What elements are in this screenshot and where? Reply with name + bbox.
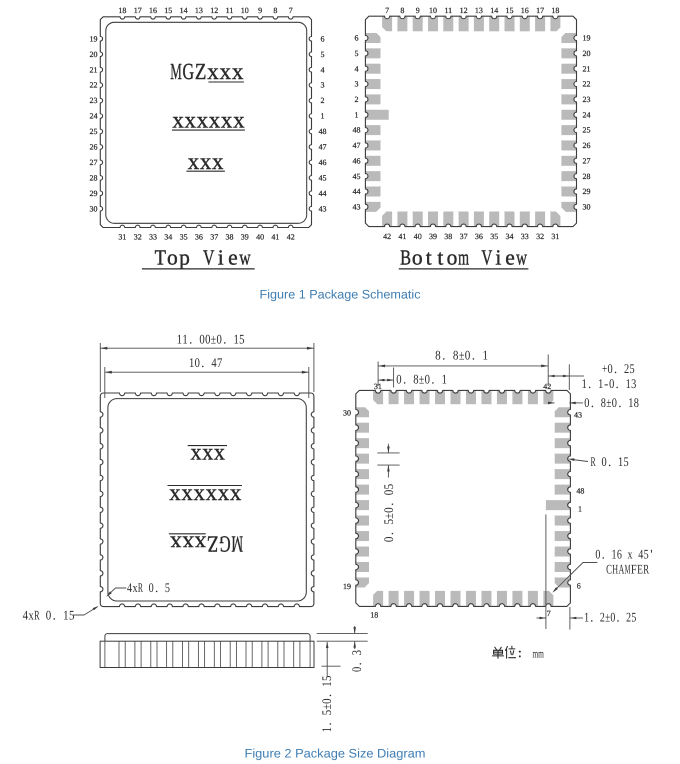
svg-text:47: 47: [319, 143, 327, 152]
svg-text:1: 1: [598, 376, 603, 391]
svg-text:22: 22: [583, 80, 591, 89]
svg-text:0: 0: [319, 698, 334, 704]
svg-text:.: .: [381, 503, 396, 506]
svg-text:.: .: [403, 372, 406, 387]
svg-text:C: C: [606, 562, 612, 577]
svg-text:5: 5: [239, 331, 245, 346]
svg-text:30: 30: [90, 204, 98, 213]
svg-text:7: 7: [547, 609, 551, 618]
svg-text:42: 42: [287, 233, 295, 242]
svg-text:.: .: [608, 454, 611, 469]
svg-text:x: x: [232, 59, 244, 84]
svg-text:27: 27: [583, 156, 591, 165]
svg-text:42: 42: [543, 382, 551, 391]
svg-text:1: 1: [584, 610, 589, 625]
svg-text:x: x: [197, 108, 209, 133]
svg-text:6: 6: [355, 34, 359, 43]
svg-text:17: 17: [536, 6, 544, 15]
svg-text:w: w: [239, 246, 251, 270]
svg-text:R: R: [643, 562, 649, 577]
svg-text:V: V: [481, 246, 492, 270]
svg-text:28: 28: [90, 173, 98, 182]
svg-text:21: 21: [583, 64, 591, 73]
svg-text:43: 43: [353, 202, 361, 211]
svg-text:t: t: [437, 246, 443, 270]
svg-text:M: M: [625, 562, 631, 577]
svg-text:x: x: [221, 108, 233, 133]
svg-text:.: .: [201, 355, 204, 370]
svg-text:40: 40: [256, 233, 264, 242]
svg-text:14: 14: [180, 6, 188, 15]
svg-text:39: 39: [429, 232, 437, 241]
svg-text:1: 1: [233, 331, 238, 346]
svg-text:40: 40: [414, 232, 422, 241]
svg-text:18: 18: [551, 6, 559, 15]
svg-text:x: x: [200, 149, 212, 174]
svg-text:V: V: [203, 246, 215, 270]
svg-text:0: 0: [216, 331, 222, 346]
svg-text:28: 28: [583, 172, 591, 181]
svg-text:39: 39: [241, 233, 249, 242]
svg-text:0: 0: [602, 454, 607, 469]
svg-text:.: .: [614, 361, 617, 376]
svg-text:1: 1: [442, 372, 447, 387]
svg-text:.: .: [381, 532, 396, 535]
svg-text:x: x: [628, 546, 633, 561]
svg-text:-: -: [604, 376, 608, 391]
svg-text:6: 6: [617, 546, 622, 561]
svg-text:48: 48: [353, 126, 361, 135]
svg-text:23: 23: [90, 96, 98, 105]
svg-text:26: 26: [583, 141, 591, 150]
svg-text:1: 1: [626, 376, 631, 391]
svg-text:27: 27: [90, 158, 98, 167]
svg-text:41: 41: [271, 233, 279, 242]
svg-text:R: R: [138, 580, 143, 595]
svg-text:43: 43: [319, 204, 327, 213]
svg-text:36: 36: [195, 233, 203, 242]
svg-text:46: 46: [353, 156, 361, 165]
svg-text:o: o: [167, 246, 178, 270]
svg-text:26: 26: [90, 143, 98, 152]
svg-text:22: 22: [90, 81, 98, 90]
svg-text:0: 0: [465, 347, 471, 362]
svg-text:1: 1: [582, 376, 587, 391]
svg-text:±: ±: [211, 331, 216, 346]
svg-text:x: x: [218, 480, 230, 505]
svg-text:.: .: [189, 331, 192, 346]
svg-text:p: p: [179, 246, 190, 270]
svg-text:0: 0: [595, 546, 600, 561]
svg-text:35: 35: [490, 232, 498, 241]
svg-text:3: 3: [631, 376, 636, 391]
svg-text:31: 31: [551, 232, 559, 241]
svg-text:3: 3: [321, 81, 325, 90]
svg-text:.: .: [588, 376, 591, 391]
svg-text:±: ±: [381, 513, 396, 519]
svg-text:25: 25: [90, 127, 98, 136]
svg-text:44: 44: [353, 187, 361, 196]
svg-text:1: 1: [321, 112, 325, 121]
svg-text:1: 1: [578, 505, 582, 514]
svg-text:M: M: [231, 531, 243, 556]
svg-text:17: 17: [134, 6, 142, 15]
svg-text:x: x: [212, 149, 224, 174]
svg-text:34: 34: [164, 233, 172, 242]
svg-text:0: 0: [381, 536, 396, 542]
svg-text:o: o: [412, 246, 423, 270]
svg-text:.: .: [319, 694, 334, 697]
svg-text:0: 0: [349, 666, 364, 672]
svg-text:x: x: [206, 480, 218, 505]
svg-text:E: E: [637, 562, 643, 577]
svg-text:1: 1: [618, 454, 623, 469]
svg-text:10: 10: [241, 6, 249, 15]
svg-text:.: .: [472, 347, 475, 362]
svg-text:36: 36: [475, 232, 483, 241]
svg-text:.: .: [616, 376, 619, 391]
svg-text:±: ±: [419, 372, 424, 387]
svg-text:42: 42: [383, 232, 391, 241]
svg-text:34: 34: [506, 232, 514, 241]
svg-text:9: 9: [416, 6, 420, 15]
svg-text:x: x: [184, 108, 196, 133]
svg-text:x: x: [230, 480, 242, 505]
svg-text:.: .: [616, 610, 619, 625]
svg-text:6: 6: [577, 582, 581, 591]
svg-text:0: 0: [381, 507, 396, 513]
svg-text:37: 37: [460, 232, 468, 241]
svg-text:0: 0: [584, 395, 589, 410]
svg-text:x: x: [170, 531, 182, 556]
svg-text:x: x: [194, 480, 206, 505]
svg-text:47: 47: [353, 141, 361, 150]
svg-text:6: 6: [321, 34, 325, 43]
svg-text:±: ±: [459, 347, 465, 362]
svg-text:23: 23: [583, 95, 591, 104]
svg-text:Z: Z: [207, 531, 219, 556]
svg-text:48: 48: [319, 127, 327, 136]
svg-text:x: x: [181, 480, 193, 505]
svg-text:Z: Z: [195, 59, 207, 84]
svg-text:12: 12: [460, 6, 468, 15]
svg-text:R: R: [591, 454, 596, 469]
svg-text:7: 7: [289, 6, 293, 15]
svg-text:G: G: [183, 59, 195, 84]
svg-text:1: 1: [628, 395, 633, 410]
svg-text:20: 20: [583, 49, 591, 58]
svg-text:25: 25: [583, 126, 591, 135]
svg-text:35: 35: [180, 233, 188, 242]
svg-text:31: 31: [118, 233, 126, 242]
svg-text:4: 4: [355, 64, 359, 73]
svg-text:B: B: [400, 246, 411, 270]
svg-text:5: 5: [321, 50, 325, 59]
svg-text:.: .: [602, 546, 605, 561]
svg-text:16: 16: [149, 6, 157, 15]
svg-text:5: 5: [381, 483, 396, 489]
svg-text:8: 8: [400, 6, 404, 15]
svg-text:32: 32: [134, 233, 142, 242]
svg-text:46: 46: [319, 158, 327, 167]
svg-text:1: 1: [319, 681, 334, 686]
svg-text:7: 7: [217, 355, 223, 370]
svg-text:8: 8: [634, 395, 639, 410]
svg-text:19: 19: [343, 582, 351, 591]
svg-text:.: .: [223, 331, 226, 346]
svg-text:38: 38: [226, 233, 234, 242]
svg-text:.: .: [155, 580, 158, 595]
svg-text:x: x: [182, 531, 194, 556]
svg-text:30: 30: [343, 409, 351, 418]
svg-text:x: x: [220, 59, 232, 84]
svg-text:x: x: [202, 440, 213, 465]
svg-text:0: 0: [425, 372, 431, 387]
svg-text:+: +: [602, 361, 607, 376]
svg-text:t: t: [426, 246, 432, 270]
svg-text:x: x: [209, 108, 221, 133]
svg-text:A: A: [618, 562, 624, 577]
svg-text:1: 1: [182, 331, 187, 346]
svg-text:.: .: [349, 662, 364, 665]
svg-text:29: 29: [90, 189, 98, 198]
svg-text:±: ±: [606, 395, 611, 410]
svg-text:30: 30: [583, 202, 591, 211]
svg-text:45: 45: [319, 173, 327, 182]
svg-text:33: 33: [149, 233, 157, 242]
svg-text:Figure 2 Package Size Diagram: Figure 2 Package Size Diagram: [245, 746, 426, 760]
svg-text:3: 3: [355, 80, 359, 89]
svg-text:19: 19: [583, 34, 591, 43]
svg-text:x: x: [207, 59, 219, 84]
svg-text:11: 11: [444, 6, 452, 15]
svg-text:8: 8: [435, 347, 441, 362]
svg-text:5: 5: [355, 49, 359, 58]
svg-text:': ': [650, 546, 652, 561]
svg-text:8: 8: [273, 6, 277, 15]
svg-text:21: 21: [90, 65, 98, 74]
svg-text:R: R: [34, 607, 40, 622]
svg-text:15: 15: [164, 6, 172, 15]
svg-text:.: .: [319, 722, 334, 725]
svg-text:16: 16: [521, 6, 529, 15]
svg-text:48: 48: [576, 487, 584, 496]
svg-text:2: 2: [624, 361, 629, 376]
svg-text:13: 13: [195, 6, 203, 15]
svg-text:0: 0: [195, 355, 201, 370]
svg-text:18: 18: [118, 6, 126, 15]
svg-text:5: 5: [629, 361, 634, 376]
svg-text:.: .: [590, 610, 593, 625]
svg-text:2: 2: [355, 95, 359, 104]
svg-text:18: 18: [370, 611, 378, 620]
svg-text:9: 9: [258, 6, 262, 15]
svg-text:0: 0: [149, 580, 154, 595]
svg-text:5: 5: [624, 454, 629, 469]
svg-text:0: 0: [610, 610, 615, 625]
svg-text:e: e: [505, 246, 515, 270]
svg-text:19: 19: [90, 34, 98, 43]
svg-text:1: 1: [611, 546, 616, 561]
svg-text:38: 38: [444, 232, 452, 241]
svg-text:Figure 1 Package Schematic: Figure 1 Package Schematic: [260, 287, 421, 301]
svg-text:2: 2: [600, 610, 605, 625]
svg-text:0: 0: [396, 372, 402, 387]
svg-text:1: 1: [189, 355, 194, 370]
svg-text:H: H: [612, 562, 618, 577]
svg-text:.: .: [591, 395, 594, 410]
svg-text:M: M: [170, 59, 182, 84]
svg-text:T: T: [155, 246, 166, 270]
svg-text:11: 11: [226, 6, 234, 15]
svg-text:20: 20: [90, 50, 98, 59]
svg-text:10: 10: [429, 6, 437, 15]
svg-text:e: e: [228, 246, 238, 270]
svg-text:1: 1: [483, 347, 489, 362]
svg-text:33: 33: [521, 232, 529, 241]
svg-text:0: 0: [609, 376, 614, 391]
svg-text:.: .: [442, 347, 445, 362]
svg-text:5: 5: [631, 610, 636, 625]
svg-text:3: 3: [349, 650, 364, 656]
svg-text:5: 5: [644, 546, 649, 561]
svg-text:F: F: [631, 562, 637, 577]
svg-text:0: 0: [607, 361, 612, 376]
svg-text:±: ±: [319, 704, 334, 709]
svg-text:44: 44: [319, 189, 327, 198]
svg-text:0: 0: [46, 607, 52, 622]
svg-text:±: ±: [605, 610, 610, 625]
svg-text:45: 45: [353, 172, 361, 181]
svg-text:15: 15: [506, 6, 514, 15]
svg-text:7: 7: [385, 6, 389, 15]
svg-text:1: 1: [177, 331, 182, 346]
svg-text:i: i: [495, 246, 501, 270]
svg-text:29: 29: [583, 187, 591, 196]
svg-text:x: x: [233, 108, 245, 133]
svg-text:5: 5: [165, 580, 170, 595]
svg-text:o: o: [447, 246, 458, 270]
svg-text:x: x: [214, 440, 225, 465]
svg-text:4: 4: [321, 65, 325, 74]
svg-text:41: 41: [398, 232, 406, 241]
svg-text:mm: mm: [532, 647, 544, 661]
svg-text:x: x: [194, 531, 206, 556]
svg-text:w: w: [516, 246, 527, 270]
svg-text:13: 13: [475, 6, 483, 15]
svg-text:2: 2: [626, 610, 631, 625]
svg-text:5: 5: [319, 675, 334, 681]
svg-text:.: .: [618, 395, 621, 410]
svg-text:24: 24: [90, 112, 98, 121]
svg-text:43: 43: [574, 411, 582, 420]
svg-text:x: x: [169, 480, 181, 505]
svg-text:14: 14: [490, 6, 498, 15]
svg-text:x: x: [188, 149, 200, 174]
svg-text:32: 32: [536, 232, 544, 241]
svg-text:x: x: [172, 108, 184, 133]
svg-text:1: 1: [355, 110, 359, 119]
svg-text:i: i: [218, 246, 224, 270]
svg-text:37: 37: [210, 233, 218, 242]
svg-text:0: 0: [612, 395, 617, 410]
svg-text:G: G: [219, 531, 231, 556]
svg-text:2: 2: [321, 96, 325, 105]
svg-text:1: 1: [319, 727, 334, 732]
svg-text:.: .: [53, 607, 56, 622]
svg-text:.: .: [431, 372, 434, 387]
svg-text:24: 24: [583, 110, 591, 119]
svg-text:12: 12: [210, 6, 218, 15]
svg-text:1: 1: [63, 607, 68, 622]
svg-text:m: m: [458, 246, 469, 270]
svg-text:x: x: [191, 440, 202, 465]
